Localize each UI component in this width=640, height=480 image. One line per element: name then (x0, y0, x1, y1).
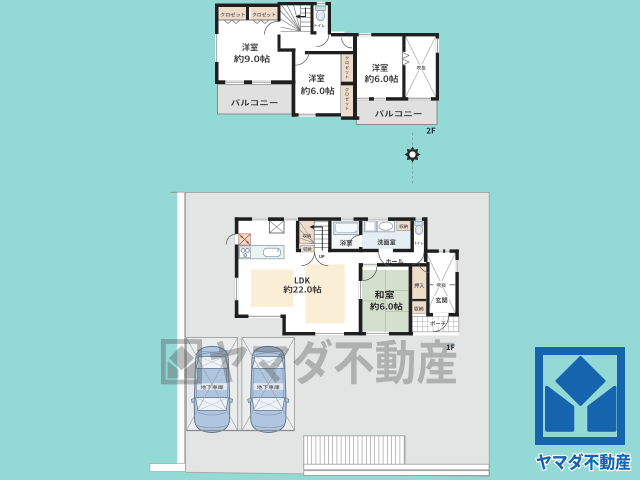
svg-text:吹抜: 吹抜 (417, 66, 427, 72)
svg-text:約9.0帖: 約9.0帖 (234, 53, 271, 65)
svg-text:洗面室: 洗面室 (377, 238, 396, 247)
svg-text:浴室: 浴室 (340, 238, 353, 247)
svg-text:吹抜: 吹抜 (436, 282, 446, 289)
svg-text:約6.0帖: 約6.0帖 (301, 85, 335, 97)
svg-text:クロゼット: クロゼット (220, 11, 246, 18)
svg-text:約6.0帖: 約6.0帖 (365, 73, 399, 85)
svg-text:UP: UP (319, 254, 325, 260)
svg-text:押入: 押入 (414, 282, 425, 289)
svg-text:収納: 収納 (303, 247, 311, 253)
svg-text:洋室: 洋室 (308, 73, 325, 85)
svg-text:約22.0帖: 約22.0帖 (283, 284, 322, 296)
svg-text:2F: 2F (426, 126, 436, 137)
svg-text:クロゼット: クロゼット (252, 11, 276, 18)
svg-text:収納: 収納 (399, 224, 408, 230)
svg-text:バルコニー: バルコニー (375, 108, 423, 119)
svg-text:和室: 和室 (375, 288, 395, 301)
svg-text:ト: ト (345, 106, 349, 112)
svg-text:トイレ: トイレ (314, 23, 326, 29)
svg-text:洋室: 洋室 (242, 42, 259, 54)
svg-text:収納: 収納 (414, 305, 424, 312)
svg-text:洋室: 洋室 (372, 62, 389, 74)
svg-text:約6.0帖: 約6.0帖 (370, 300, 404, 312)
svg-text:ヤマダ不動産: ヤマダ不動産 (536, 450, 631, 475)
svg-text:玄関: 玄関 (435, 296, 447, 305)
svg-text:ヤマダ不動産: ヤマダ不動産 (208, 324, 458, 394)
svg-text:ト: ト (345, 74, 349, 80)
svg-text:バルコニー: バルコニー (231, 97, 279, 108)
svg-text:1F: 1F (446, 342, 455, 353)
svg-text:トイレ: トイレ (414, 240, 424, 246)
